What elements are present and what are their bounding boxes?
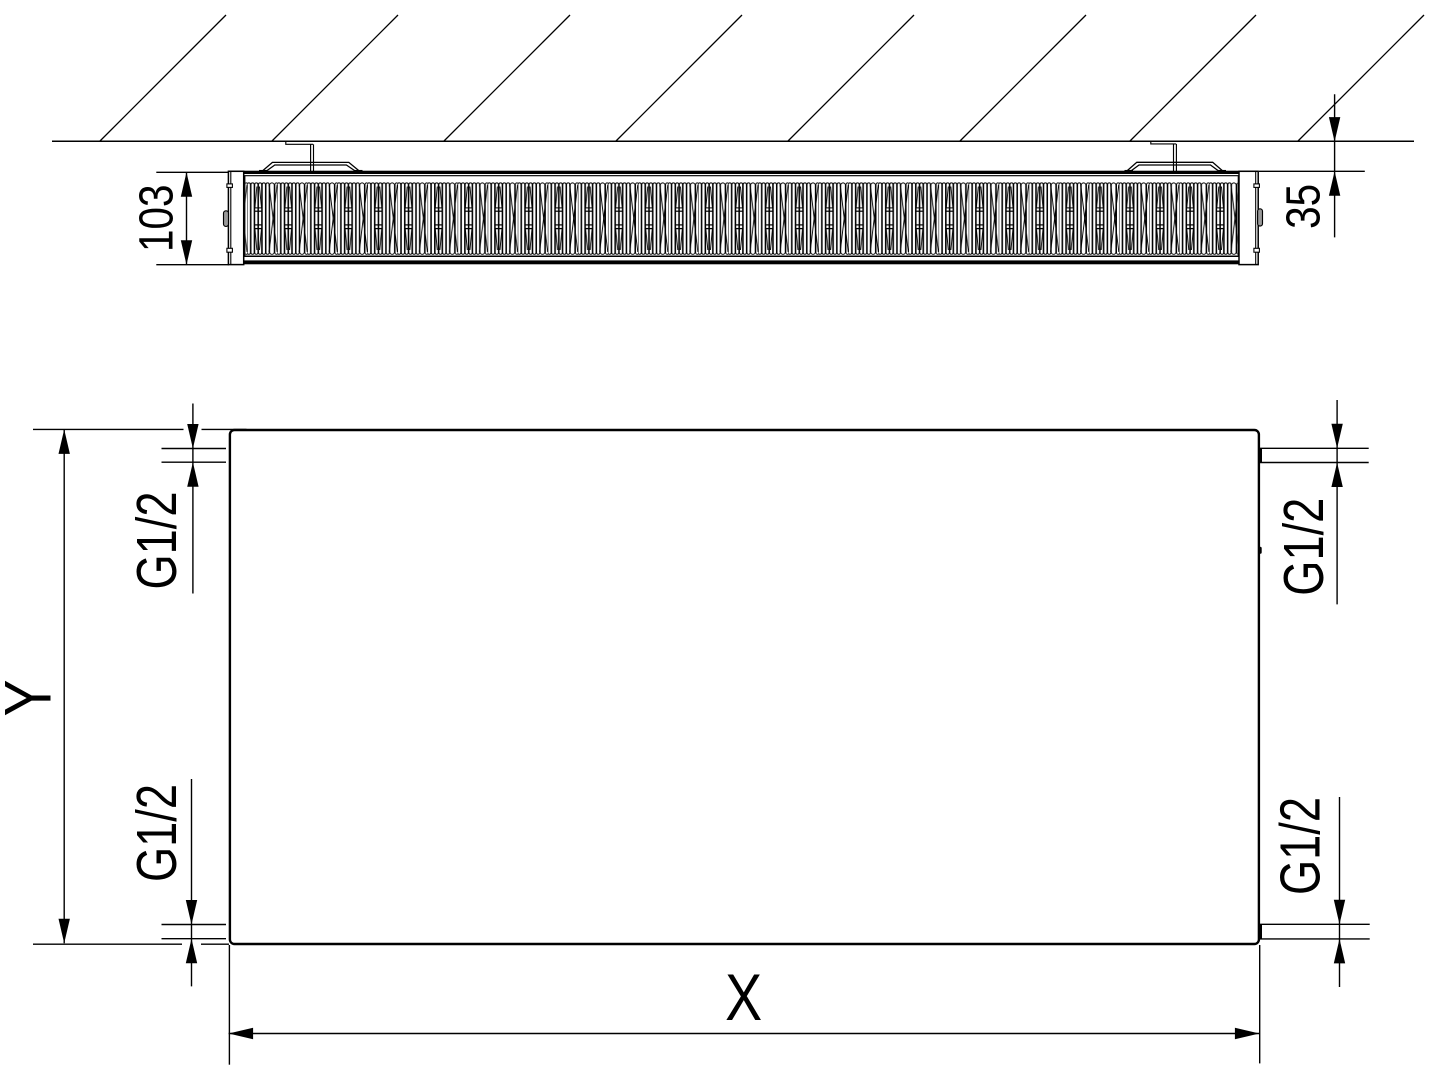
svg-text:G1/2: G1/2 bbox=[125, 492, 189, 590]
svg-text:G1/2: G1/2 bbox=[1272, 498, 1336, 596]
svg-text:35: 35 bbox=[1278, 184, 1331, 229]
svg-text:103: 103 bbox=[131, 184, 184, 252]
svg-text:G1/2: G1/2 bbox=[1269, 797, 1333, 895]
svg-text:G1/2: G1/2 bbox=[125, 784, 189, 882]
svg-text:X: X bbox=[725, 960, 762, 1034]
svg-text:Y: Y bbox=[0, 680, 65, 717]
